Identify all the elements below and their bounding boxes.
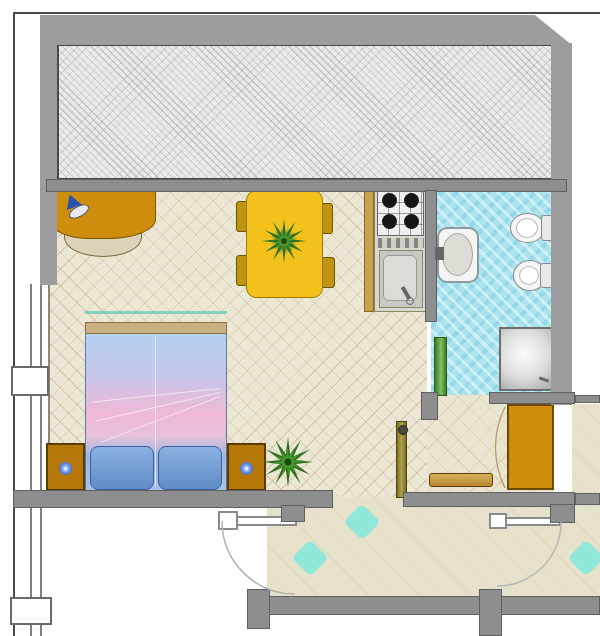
wall-right <box>551 43 572 405</box>
corridor-floor-right-arm <box>572 404 600 499</box>
wall-bathroom-bottom <box>489 392 575 404</box>
sink-drain-icon <box>406 297 414 305</box>
site-boundary-line-left <box>13 12 15 636</box>
washbasin-bowl <box>442 233 473 276</box>
window-marker-lower <box>10 597 52 625</box>
stove-burner-icon <box>382 193 397 208</box>
stove-burner-icon <box>382 214 397 229</box>
kitchen-control-strip <box>378 238 424 248</box>
wall-pillar-b <box>550 504 575 523</box>
kitchen-side-panel <box>364 186 374 312</box>
toilet-bowl <box>516 218 538 238</box>
stove-burner-icon <box>404 214 419 229</box>
wall-pillar-a <box>281 505 305 522</box>
bed-head-shelf <box>85 311 227 314</box>
wall-left <box>40 15 57 285</box>
bidet-bowl <box>519 266 539 285</box>
facade-line-left-inner <box>30 284 32 636</box>
wall-bathroom-bottom-ext <box>575 395 600 403</box>
bed-crease <box>155 336 156 486</box>
wall-pillar-c <box>247 589 270 629</box>
wall-pillar-d <box>479 589 502 636</box>
wardrobe <box>507 404 554 490</box>
neighbour-door-handle <box>218 511 238 530</box>
facade-line-left-inner2 <box>40 284 42 636</box>
nightstand-lamp-icon <box>59 462 72 475</box>
entry-door-knob-icon <box>398 425 408 435</box>
wall-terrace-divider <box>46 179 567 192</box>
pillow-left <box>90 446 154 490</box>
pillow-right <box>158 446 222 490</box>
wall-corridor-bottom <box>253 596 600 615</box>
kitchen-sink-basin <box>383 255 417 301</box>
entry-bench <box>429 473 493 487</box>
stove-burner-icon <box>404 193 419 208</box>
corridor-door-jamb <box>489 513 507 529</box>
window-marker-upper <box>11 366 49 396</box>
site-boundary-line-top <box>13 12 600 14</box>
wall-pillar-bathroom-door <box>421 392 438 420</box>
washbasin-tap-icon <box>435 247 444 260</box>
dining-table <box>246 190 323 298</box>
bathroom-door <box>434 337 447 396</box>
wall-entry-bottom-ext <box>575 493 600 505</box>
bed-headboard <box>85 322 227 334</box>
wall-top <box>40 15 572 45</box>
desk <box>50 189 156 239</box>
floor-plan <box>0 0 600 636</box>
nightstand-lamp-icon <box>240 462 253 475</box>
terrace-floor <box>57 44 553 180</box>
